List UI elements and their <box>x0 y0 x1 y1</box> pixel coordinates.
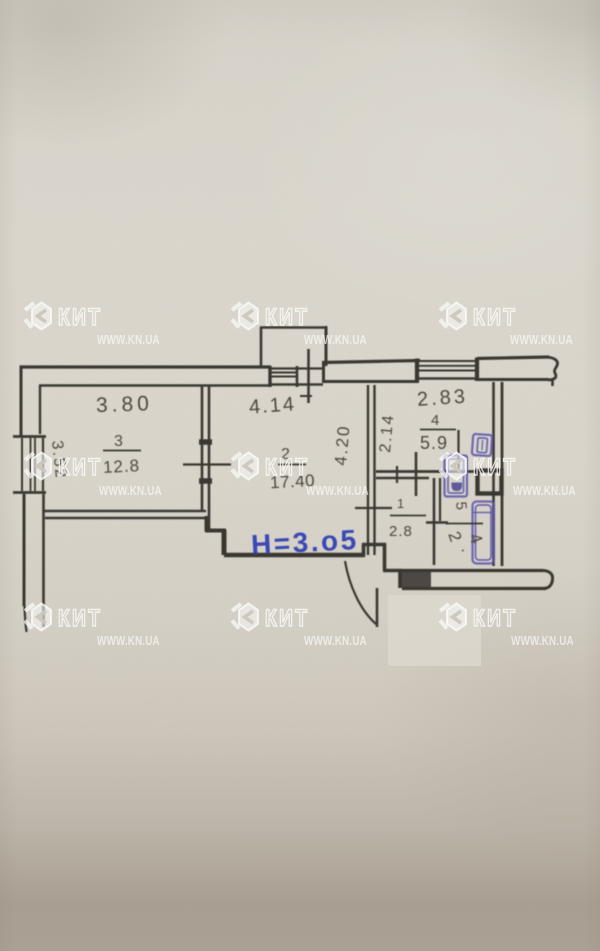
svg-text:H=3.o5: H=3.o5 <box>250 524 359 561</box>
svg-text:5.9: 5.9 <box>420 433 448 453</box>
svg-text:4: 4 <box>431 412 439 429</box>
svg-text:4.14: 4.14 <box>248 393 296 418</box>
svg-text:3: 3 <box>114 433 123 450</box>
svg-text:2.8: 2.8 <box>389 523 413 540</box>
svg-text:1: 1 <box>397 496 404 511</box>
svg-text:5: 5 <box>452 501 470 511</box>
svg-text:4.20: 4.20 <box>331 424 354 467</box>
svg-text:2.83: 2.83 <box>416 385 468 410</box>
svg-text:3.80: 3.80 <box>96 392 154 417</box>
svg-text:2.14: 2.14 <box>377 413 397 453</box>
svg-text:12.8: 12.8 <box>103 456 141 477</box>
